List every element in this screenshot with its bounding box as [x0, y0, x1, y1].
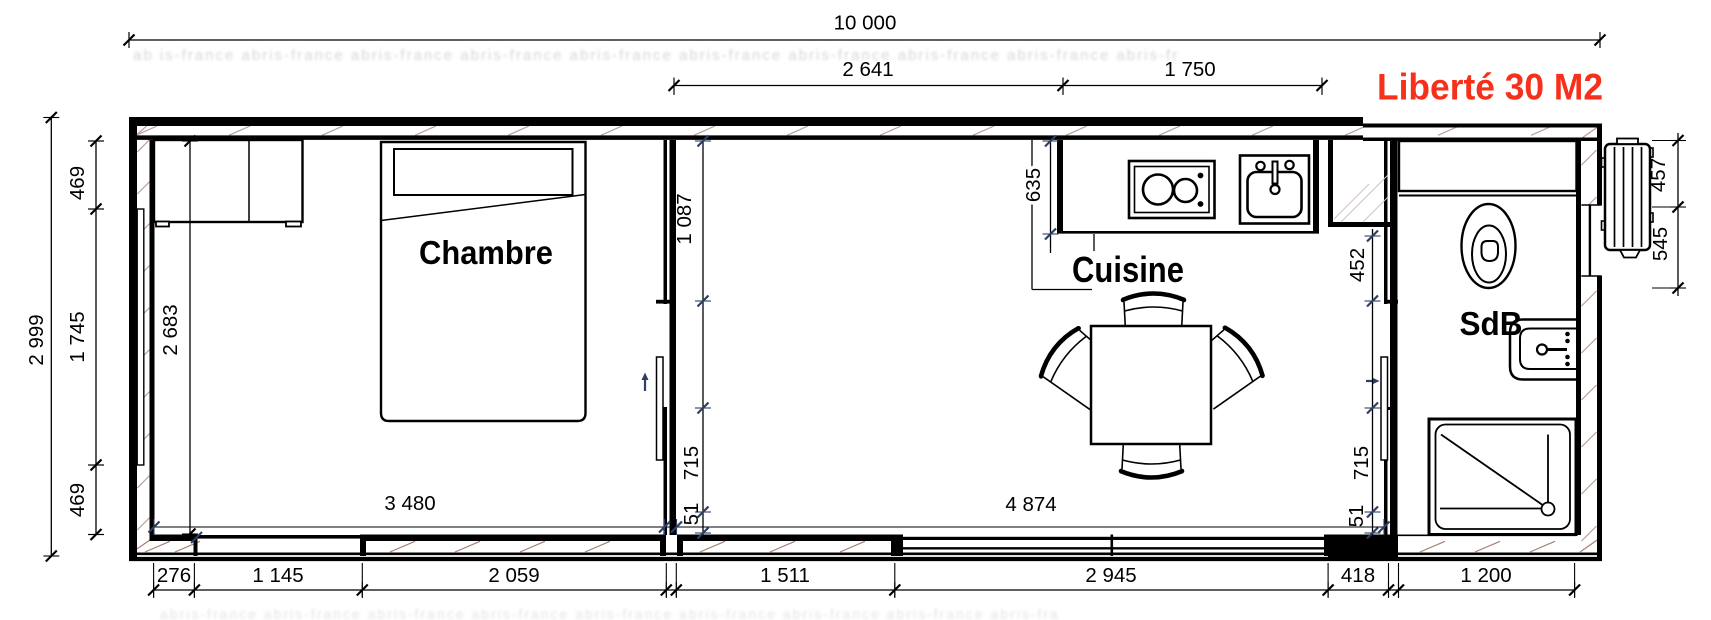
svg-text:Liberté 30 M2: Liberté 30 M2: [1377, 66, 1603, 108]
svg-text:SdB: SdB: [1460, 305, 1523, 342]
svg-text:1 200: 1 200: [1460, 564, 1511, 587]
svg-text:418: 418: [1341, 564, 1375, 587]
svg-text:3 480: 3 480: [384, 492, 435, 515]
svg-text:715: 715: [1350, 446, 1373, 480]
svg-text:1 145: 1 145: [252, 564, 303, 587]
svg-text:51: 51: [680, 503, 703, 526]
svg-text:Chambre: Chambre: [419, 234, 553, 271]
svg-text:1 511: 1 511: [760, 564, 810, 587]
svg-text:469: 469: [66, 166, 89, 200]
svg-text:452: 452: [1346, 248, 1369, 282]
svg-text:2 059: 2 059: [488, 564, 539, 587]
svg-text:1 745: 1 745: [66, 311, 89, 362]
svg-text:1 087: 1 087: [673, 193, 696, 244]
svg-text:715: 715: [680, 446, 703, 480]
svg-text:2 945: 2 945: [1085, 564, 1136, 587]
svg-text:635: 635: [1022, 168, 1045, 202]
svg-text:Cuisine: Cuisine: [1072, 249, 1184, 290]
svg-text:2 641: 2 641: [842, 58, 893, 81]
svg-text:10 000: 10 000: [834, 12, 897, 35]
svg-text:ab is-france abris-france abri: ab is-france abris-france abris-france a…: [133, 47, 1179, 64]
svg-text:457: 457: [1647, 158, 1670, 192]
svg-text:545: 545: [1649, 227, 1672, 261]
svg-text:1 750: 1 750: [1164, 58, 1215, 81]
svg-text:4 874: 4 874: [1005, 493, 1056, 516]
svg-text:469: 469: [66, 483, 89, 517]
svg-text:abris-france abris-france abri: abris-france abris-france abris-france a…: [160, 606, 1060, 620]
svg-text:276: 276: [157, 564, 191, 587]
svg-text:2 683: 2 683: [159, 304, 182, 355]
svg-text:2 999: 2 999: [25, 314, 48, 365]
svg-text:51: 51: [1345, 505, 1368, 528]
